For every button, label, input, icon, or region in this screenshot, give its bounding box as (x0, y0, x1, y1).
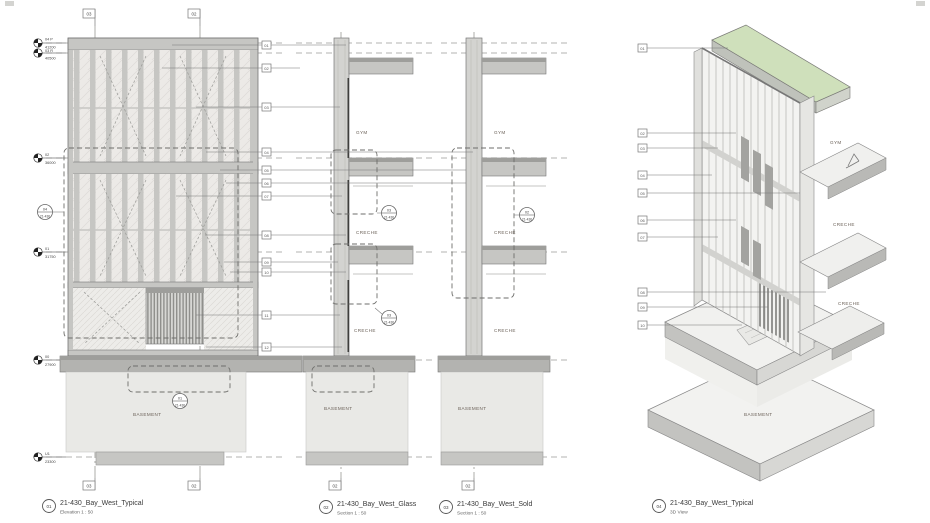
ref-bubble: 04 21-430 (38, 205, 65, 220)
svg-text:05: 05 (264, 168, 269, 173)
view-titles: 01 21-430_Bay_West_Typical Elevation 1 :… (43, 500, 754, 517)
view-3d: GYM CRECHE CRECHE BASEMENT 01 02 03 04 0… (638, 25, 886, 481)
glazing-line (348, 180, 350, 246)
level-name: U1 (45, 452, 50, 456)
level-name: 03 R (45, 49, 53, 53)
view-section-glass: GYM CRECHE CRECHE BASEMENT (303, 38, 415, 465)
room-label-creche: CRECHE (494, 230, 516, 235)
svg-text:07: 07 (264, 194, 269, 199)
room-label-creche: CRECHE (833, 222, 855, 227)
glazing-line (348, 78, 350, 158)
level-name: 02 (45, 153, 49, 157)
svg-text:01: 01 (264, 43, 269, 48)
level-elevation: 23300 (45, 460, 56, 464)
svg-text:06: 06 (640, 218, 645, 223)
level-marker: 04 P 41200 (34, 38, 66, 50)
room-label-creche: CRECHE (356, 230, 378, 235)
grid-head-label: 02 (333, 484, 338, 489)
svg-text:08: 08 (640, 290, 645, 295)
svg-text:04: 04 (264, 150, 269, 155)
level-name: 01 (45, 247, 49, 251)
ref-bubble: 03 21-430 (377, 206, 397, 221)
level-elevation: 27900 (45, 363, 56, 367)
level-marker: 03 R 40500 (34, 49, 66, 61)
view-title: 03 21-430_Bay_West_Sold Section 1 : 50 (440, 501, 533, 517)
grid-head-solid-axis: 02 (462, 478, 474, 490)
view-title: 04 21-430_Bay_West_Typical 3D View (653, 500, 754, 516)
grid-head-bottom-03: 03 (83, 478, 95, 490)
room-label-creche: CRECHE (494, 328, 516, 333)
svg-text:01: 01 (640, 46, 645, 51)
glazing-line (348, 280, 350, 352)
room-label-basement: BASEMENT (744, 412, 772, 417)
view-title-name: 21-430_Bay_West_Glass (337, 501, 417, 508)
svg-text:08: 08 (264, 233, 269, 238)
view-title-name: 21-430_Bay_West_Sold (457, 501, 532, 508)
svg-text:10: 10 (264, 270, 269, 275)
view-title-sub: Elevation 1 : 50 (60, 510, 93, 516)
drawing-canvas: 04 P 41200 03 R 40500 02 36000 01 31750 (0, 0, 930, 523)
grid-head-glass-axis: 02 (329, 478, 341, 490)
svg-text:04: 04 (43, 207, 47, 211)
grid-head-top-02: 02 (188, 9, 200, 26)
svg-text:05: 05 (640, 191, 645, 196)
svg-text:21-430: 21-430 (522, 217, 532, 221)
level-name: 04 P (45, 38, 53, 42)
room-label-basement: BASEMENT (133, 412, 161, 417)
view-title-name: 21-430_Bay_West_Typical (670, 500, 754, 507)
grid-head-label: 02 (192, 12, 197, 17)
room-label-creche: CRECHE (354, 328, 376, 333)
room-label-basement: BASEMENT (324, 406, 352, 411)
view-title-sub: Section 1 : 50 (457, 511, 487, 517)
sheet-corner-mark-left (5, 1, 14, 6)
svg-text:04: 04 (640, 173, 645, 178)
drawing-sheet: 04 P 41200 03 R 40500 02 36000 01 31750 (0, 0, 930, 523)
view-title-number: 04 (656, 504, 662, 509)
level-elevation: 31750 (45, 255, 56, 259)
svg-text:21-430: 21-430 (175, 403, 185, 407)
view-title-number: 02 (323, 505, 329, 510)
view-title: 01 21-430_Bay_West_Typical Elevation 1 :… (43, 500, 144, 516)
level-elevation: 40500 (45, 57, 56, 61)
grid-head-label: 03 (87, 484, 92, 489)
svg-text:12: 12 (264, 345, 269, 350)
grid-head-label: 02 (466, 484, 471, 489)
grid-head-label: 03 (87, 12, 92, 17)
svg-text:03: 03 (387, 208, 391, 212)
room-label-creche: CRECHE (838, 301, 860, 306)
room-label-basement: BASEMENT (458, 406, 486, 411)
svg-text:03: 03 (640, 146, 645, 151)
svg-text:21-430: 21-430 (384, 215, 394, 219)
grid-head-top-03: 03 (83, 9, 95, 26)
room-label-gym: GYM (830, 140, 842, 145)
view-title-number: 03 (443, 505, 449, 510)
svg-text:09: 09 (264, 260, 269, 265)
level-markers: 04 P 41200 03 R 40500 02 36000 01 31750 (34, 38, 66, 465)
view-title: 02 21-430_Bay_West_Glass Section 1 : 50 (320, 501, 417, 517)
view-section-solid: GYM CRECHE CRECHE BASEMENT (438, 38, 550, 465)
svg-text:02: 02 (640, 131, 645, 136)
room-label-gym: GYM (356, 130, 368, 135)
level-marker: 01 31750 (34, 247, 66, 259)
svg-text:21-430: 21-430 (40, 214, 50, 218)
svg-text:10: 10 (640, 323, 645, 328)
ref-bubble: 03 21-430 (375, 308, 397, 326)
room-label-gym: GYM (494, 130, 506, 135)
svg-text:06: 06 (264, 181, 269, 186)
ref-bubble: 02 21-430 (514, 208, 535, 223)
sheet-corner-mark-right (916, 1, 925, 6)
svg-text:09: 09 (640, 305, 645, 310)
level-name: 00 (45, 355, 49, 359)
level-elevation: 36000 (45, 161, 56, 165)
svg-text:02: 02 (264, 66, 269, 71)
view-title-number: 01 (46, 504, 52, 509)
svg-text:01: 01 (178, 396, 182, 400)
svg-text:03: 03 (264, 105, 269, 110)
view-title-name: 21-430_Bay_West_Typical (60, 500, 144, 507)
grid-head-bottom-02: 02 (188, 478, 200, 490)
grid-head-label: 02 (192, 484, 197, 489)
svg-text:03: 03 (387, 313, 391, 317)
svg-text:21-430: 21-430 (384, 320, 394, 324)
view-title-sub: Section 1 : 50 (337, 511, 367, 517)
level-marker: 02 36000 (34, 153, 66, 165)
svg-text:02: 02 (525, 210, 529, 214)
svg-text:07: 07 (640, 235, 645, 240)
level-marker: U1 23300 (34, 452, 66, 464)
view-title-sub: 3D View (670, 510, 688, 516)
